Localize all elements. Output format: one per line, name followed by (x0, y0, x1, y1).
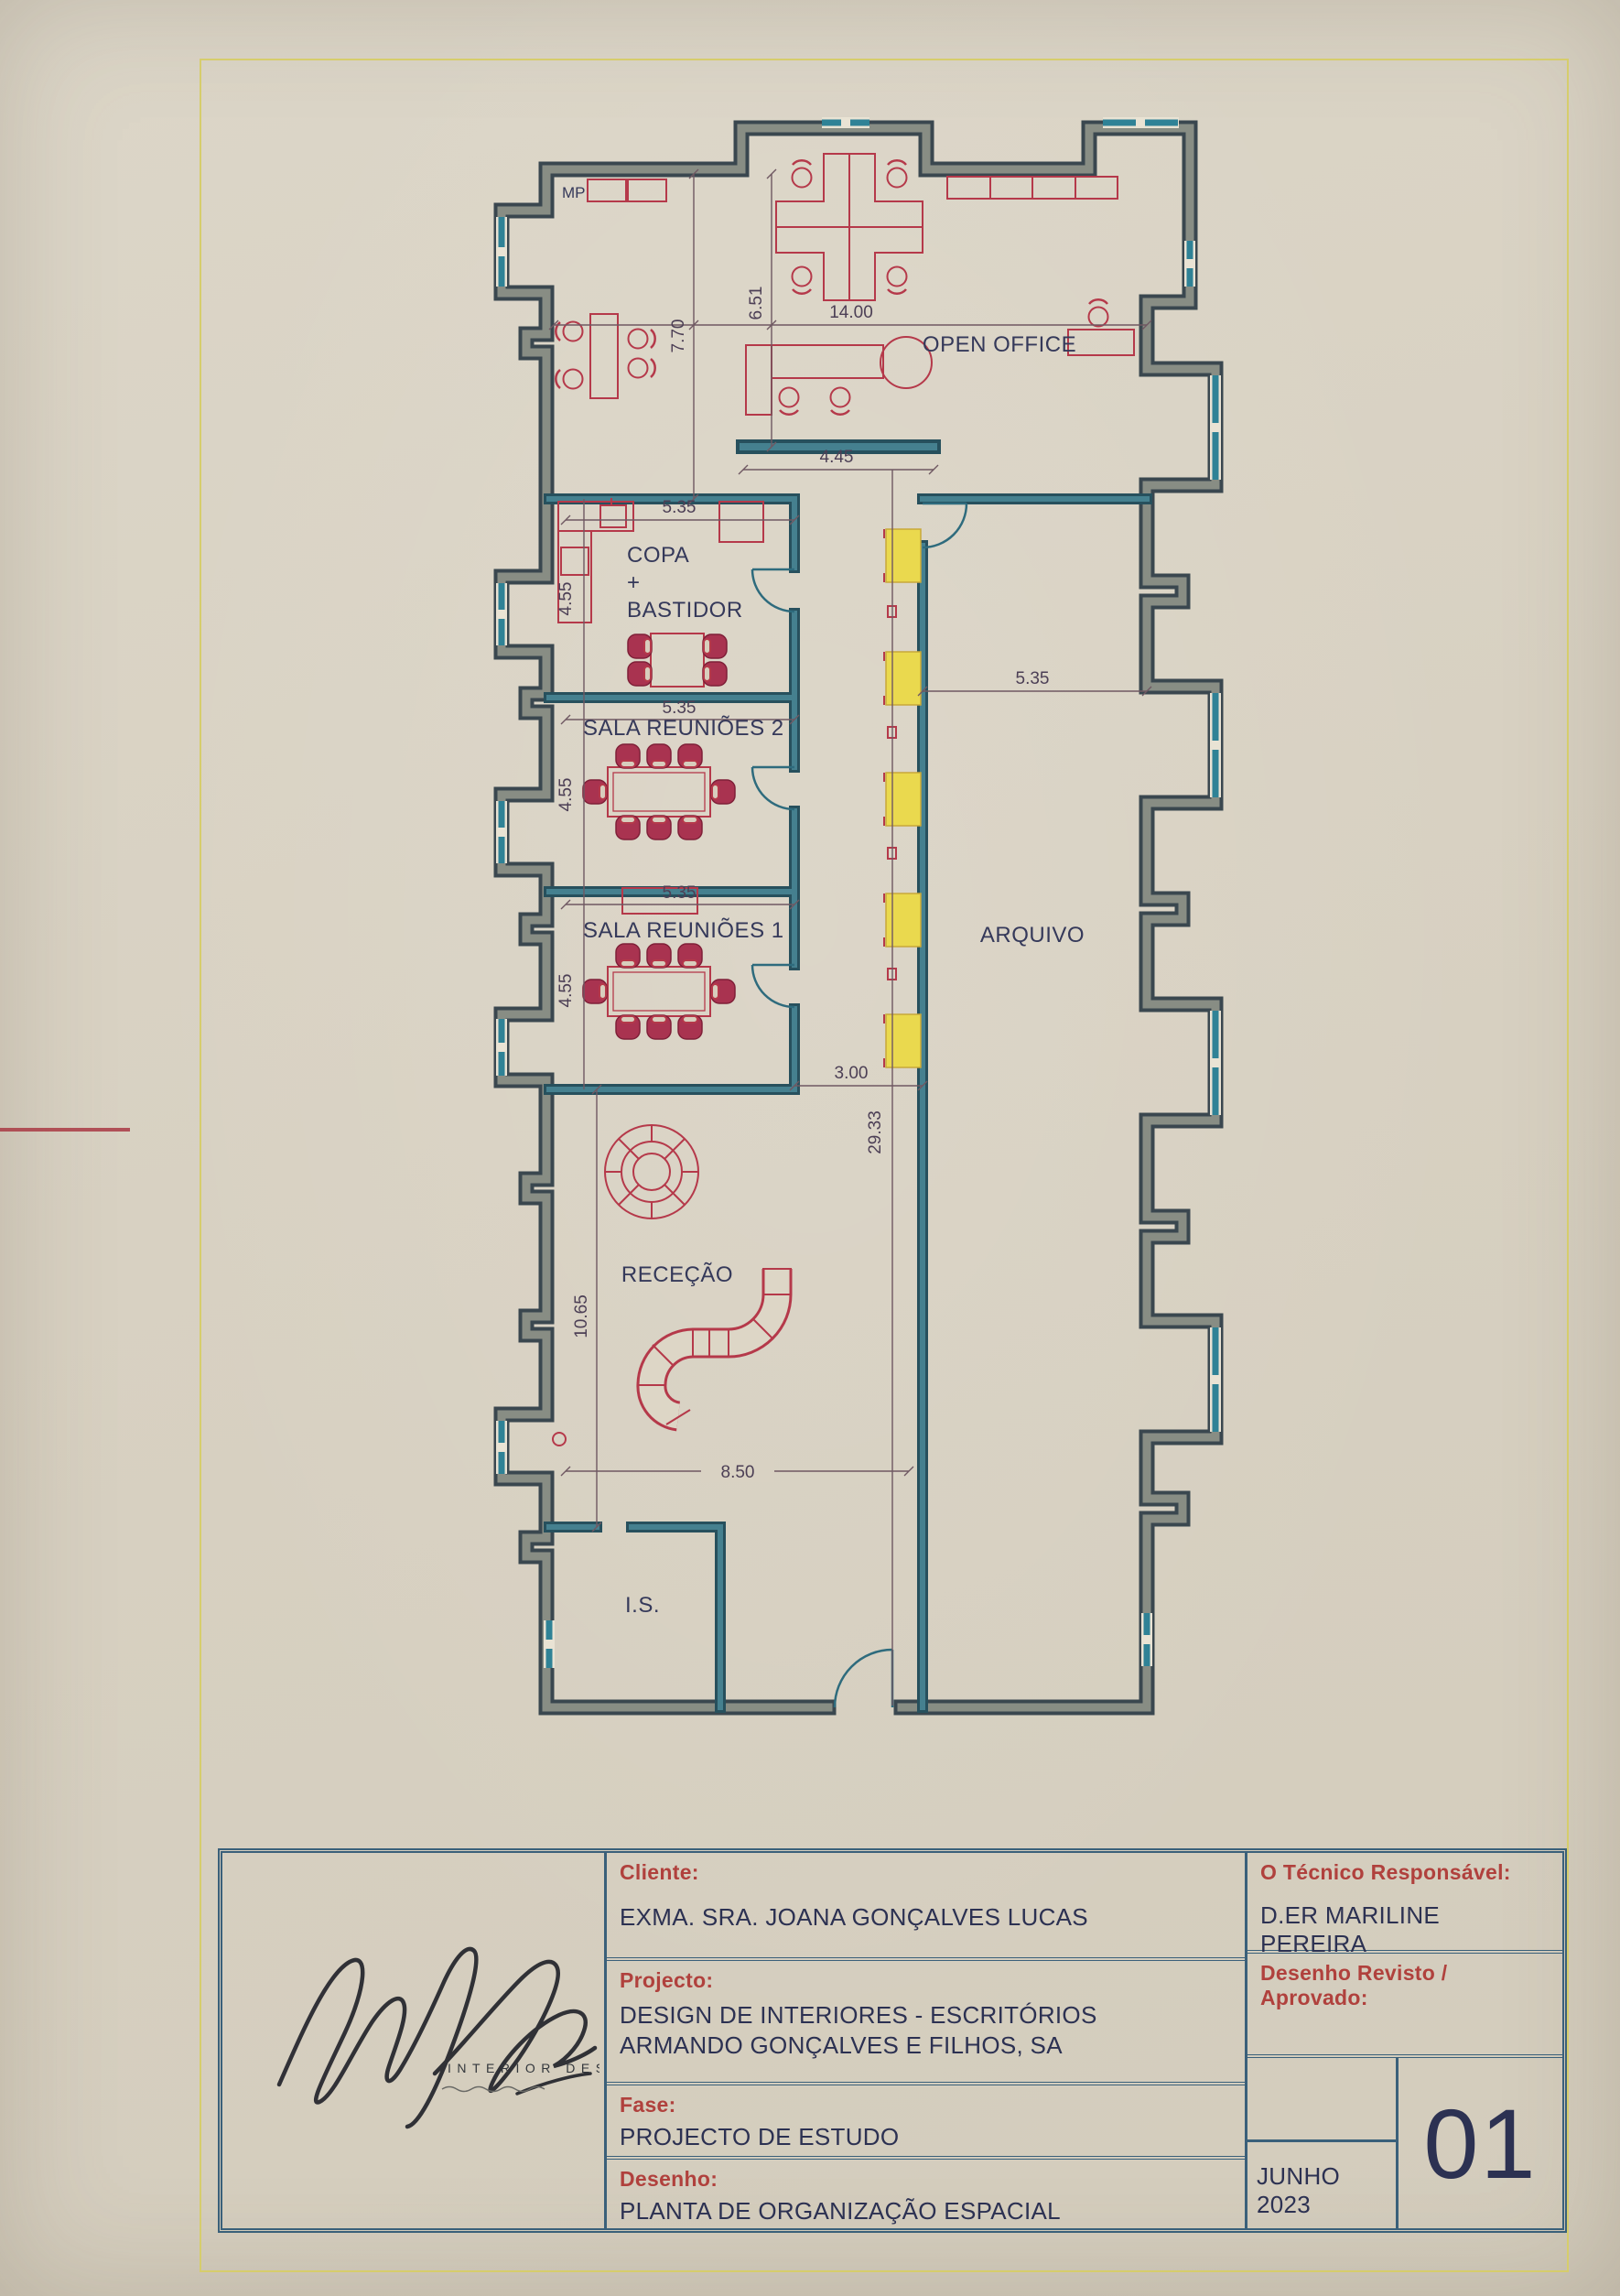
scanned-paper-page: 14.00 7.70 6.51 4.45 5.35 4.55 5.35 4.55… (0, 0, 1620, 2296)
copa-furniture (558, 498, 763, 687)
dim-open-office-width: 14.00 (829, 303, 873, 322)
cliente-row: Cliente: EXMA. SRA. JOANA GONÇALVES LUCA… (607, 1853, 1245, 1961)
tecnico-value: D.ER MARILINE PEREIRA (1260, 1901, 1550, 1958)
label-is: I.S. (625, 1593, 660, 1618)
empty-cell (1247, 2058, 1396, 2142)
dim-corridor-length: 29.33 (866, 1110, 885, 1154)
dim-corridor-width: 3.00 (835, 1064, 869, 1083)
dim-rececao-width: 8.50 (721, 1463, 755, 1482)
label-copa-3: BASTIDOR (627, 598, 743, 623)
dim-sala1-width: 5.35 (663, 883, 697, 903)
dim-rececao-height: 10.65 (572, 1294, 591, 1338)
revisto-label: Desenho Revisto / Aprovado: (1260, 1961, 1550, 2010)
cliente-value: EXMA. SRA. JOANA GONÇALVES LUCAS (620, 1903, 1232, 1932)
label-open-office: OPEN OFFICE (923, 332, 1076, 357)
sala1-furniture (583, 888, 735, 1039)
sala2-furniture (583, 744, 735, 839)
tecnico-label: O Técnico Responsável: (1260, 1860, 1550, 1885)
title-block-signature-cell: INTERIOR DESIGN (222, 1853, 607, 2228)
title-block-right-column: O Técnico Responsável: D.ER MARILINE PER… (1247, 1853, 1562, 2228)
label-rececao: RECEÇÃO (621, 1262, 733, 1287)
projecto-label: Projecto: (620, 1968, 1232, 1993)
dim-partition-length: 4.45 (820, 448, 854, 467)
label-sala1: SALA REUNIÕES 1 (583, 917, 784, 943)
label-copa-2: + (627, 570, 641, 595)
label-sala2: SALA REUNIÕES 2 (583, 715, 784, 741)
fase-value: PROJECTO DE ESTUDO (620, 2123, 1232, 2151)
label-mp: MP (562, 184, 586, 201)
desenho-label: Desenho: (620, 2167, 1232, 2192)
label-copa-1: COPA (627, 543, 689, 568)
revisto-row: Desenho Revisto / Aprovado: (1247, 1954, 1562, 2058)
desenho-value: PLANTA DE ORGANIZAÇÃO ESPACIAL (620, 2197, 1232, 2226)
corridor-cabinets (884, 529, 921, 1067)
floor-plan-drawing: 14.00 7.70 6.51 4.45 5.35 4.55 5.35 4.55… (0, 0, 1620, 1831)
dim-sala1-height: 4.55 (556, 974, 576, 1008)
sheet-info-row: JUNHO 2023 01 (1247, 2058, 1562, 2228)
dimension-texts: 14.00 7.70 6.51 4.45 5.35 4.55 5.35 4.55… (556, 287, 1049, 1482)
sheet-number-cell: 01 (1399, 2058, 1562, 2228)
fase-label: Fase: (620, 2093, 1232, 2117)
label-arquivo: ARQUIVO (980, 923, 1085, 948)
projecto-value: DESIGN DE INTERIORES - ESCRITÓRIOS ARMAN… (620, 2000, 1187, 2060)
dim-copa-height: 4.55 (556, 582, 576, 616)
fase-row: Fase: PROJECTO DE ESTUDO (607, 2085, 1245, 2160)
open-office-furniture (556, 154, 1134, 415)
desenho-row: Desenho: PLANTA DE ORGANIZAÇÃO ESPACIAL (607, 2160, 1245, 2228)
tecnico-row: O Técnico Responsável: D.ER MARILINE PER… (1247, 1853, 1562, 1954)
cliente-label: Cliente: (620, 1860, 1232, 1885)
doors (752, 504, 967, 1707)
dim-arquivo-width: 5.35 (1016, 669, 1050, 688)
dim-sala2-height: 4.55 (556, 778, 576, 812)
logo-interior-design: INTERIOR DESIGN (448, 2061, 599, 2075)
dim-open-office-left-height: 7.70 (669, 319, 688, 353)
dim-copa-width: 5.35 (663, 498, 697, 517)
dim-open-office-right-height: 6.51 (747, 287, 766, 320)
projecto-row: Projecto: DESIGN DE INTERIORES - ESCRITÓ… (607, 1961, 1245, 2085)
title-block-middle-column: Cliente: EXMA. SRA. JOANA GONÇALVES LUCA… (607, 1853, 1247, 2228)
sheet-date: JUNHO 2023 (1247, 2142, 1396, 2228)
designer-signature: INTERIOR DESIGN (222, 1853, 599, 2228)
dim-sala2-width: 5.35 (663, 699, 697, 718)
date-subcolumn: JUNHO 2023 (1247, 2058, 1399, 2228)
sheet-number: 01 (1423, 2086, 1537, 2201)
title-block: INTERIOR DESIGN Cliente: EXMA. SRA. JOAN… (218, 1848, 1567, 2233)
